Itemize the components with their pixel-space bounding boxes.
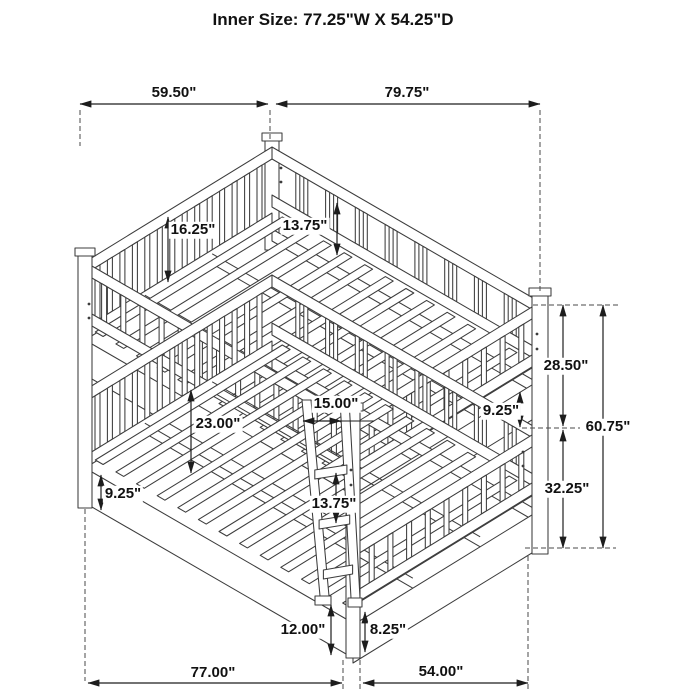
- dim-floor-width: 77.00": [189, 665, 238, 682]
- dim-lower-section: 32.25": [543, 481, 592, 498]
- dim-ladder-clearance: 12.00": [279, 622, 328, 639]
- dim-top-depth: 59.50": [150, 85, 199, 102]
- dim-top-width: 79.75": [383, 85, 432, 102]
- dim-ladder-width: 15.00": [312, 396, 361, 413]
- inner-size-title: Inner Size: 77.25"W X 54.25"D: [213, 10, 454, 30]
- dim-overall-height: 60.75": [584, 419, 633, 436]
- bunk-bed-line-drawing: [0, 0, 700, 700]
- dim-upper-section: 28.50": [542, 358, 591, 375]
- dim-ladder-rung-spacing: 13.75": [310, 496, 359, 513]
- dim-side-rail: 9.25": [103, 486, 143, 503]
- dim-footboard-rail: 9.25": [481, 403, 521, 420]
- dimension-diagram: Inner Size: 77.25"W X 54.25"D 59.50" 79.…: [0, 0, 700, 700]
- dim-bunk-clearance: 23.00": [194, 416, 243, 433]
- dim-rail-clearance: 8.25": [368, 622, 408, 639]
- dim-headboard-panel: 16.25": [169, 222, 218, 239]
- dim-guardrail-to-deck: 13.75": [281, 218, 330, 235]
- dim-floor-depth: 54.00": [417, 664, 466, 681]
